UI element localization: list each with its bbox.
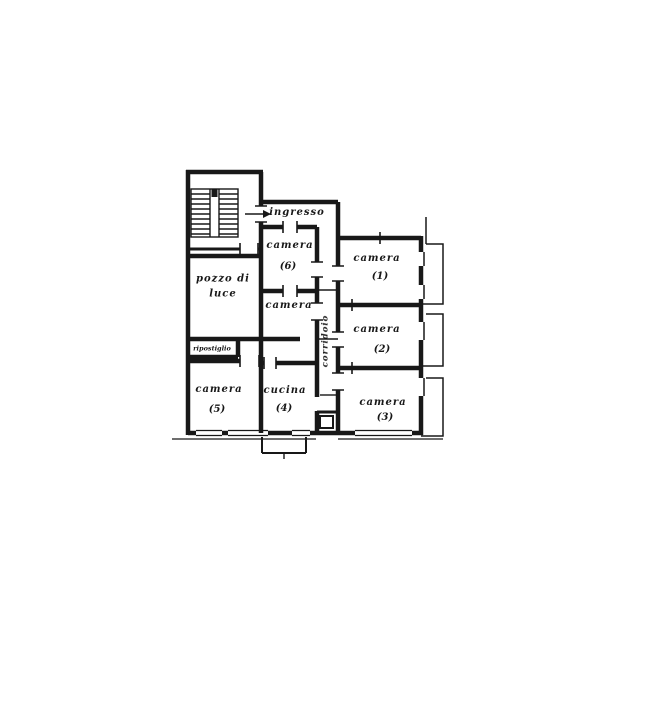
room-label-camera-5: camera <box>195 385 242 396</box>
room-number-camera-6: (6) <box>280 262 296 273</box>
room-label-pozzo-di-luce: pozzo di luce <box>196 273 250 302</box>
pozzo-line-2: luce <box>196 287 250 302</box>
pozzo-line-1: pozzo di <box>196 273 250 288</box>
room-label-camera-2: camera <box>353 325 400 336</box>
room-label-camera-1: camera <box>353 254 400 265</box>
balconies <box>421 217 443 436</box>
ground-lines <box>172 437 443 459</box>
storage-label: ripostiglio <box>193 346 231 353</box>
room-number-camera-2: (2) <box>374 345 390 356</box>
stairs-icon <box>191 189 238 237</box>
room-number-camera-1: (1) <box>372 272 388 283</box>
floor-plan-page: ingresso camera (6) camera pozzo di luce… <box>0 0 658 720</box>
windows <box>196 431 412 436</box>
room-number-cucina-4: (4) <box>276 404 292 415</box>
room-label-camera-small: camera <box>265 301 312 312</box>
room-number-camera-5: (5) <box>209 405 225 416</box>
room-label-camera-3: camera <box>359 398 406 409</box>
entrance-arrow-icon <box>245 210 271 218</box>
room-label-cucina-4: cucina <box>264 386 307 397</box>
entrance-label: ingresso <box>269 208 325 219</box>
room-number-camera-3: (3) <box>377 413 393 424</box>
corridor-label: corridoio <box>322 315 331 368</box>
room-label-camera-6: camera <box>266 241 313 252</box>
